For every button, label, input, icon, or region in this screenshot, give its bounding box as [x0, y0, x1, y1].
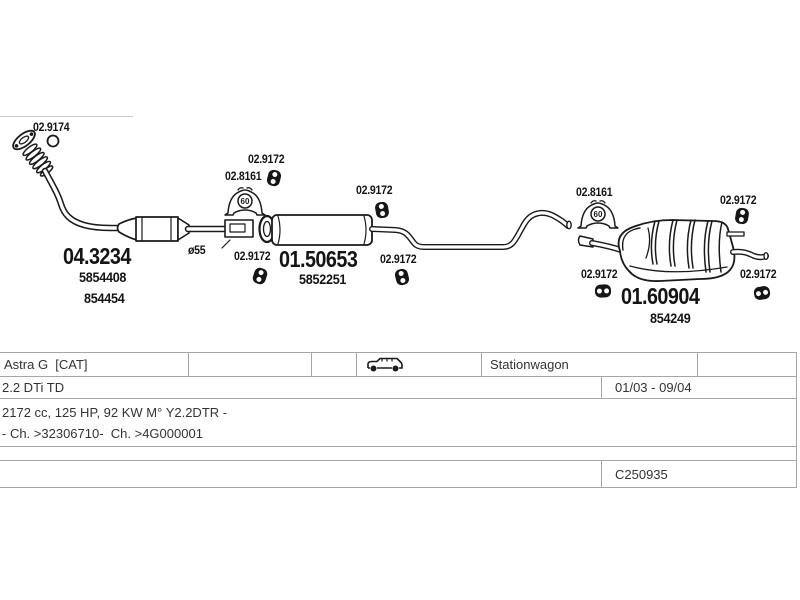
- engine-spec-cell: 2172 cc, 125 HP, 92 KW M° Y2.2DTR - - Ch…: [0, 399, 797, 446]
- middle-silencer-ref1: 5852251: [299, 272, 346, 286]
- bracket-size-label: 60: [241, 197, 250, 206]
- empty-cell: [698, 353, 797, 376]
- engine-spec-line2: - Ch. >32306710- Ch. >4G000001: [2, 423, 796, 444]
- front-pipe: [45, 171, 121, 228]
- hanger-part-label: 02.9172: [581, 268, 617, 280]
- rubber-hanger-icon: [753, 285, 771, 301]
- body-type-cell: Stationwagon: [482, 353, 698, 376]
- front-pipe-ref1: 5854408: [79, 270, 126, 284]
- empty-cell: [312, 353, 357, 376]
- build-period-cell: 01/03 - 09/04: [602, 377, 797, 398]
- intermediate-pipe: [372, 213, 571, 247]
- table-row: Astra G [CAT] Stationwagon: [0, 352, 797, 376]
- pipe-diameter-label: ø55: [188, 244, 205, 256]
- front-pipe-number[interactable]: 04.3234: [63, 245, 131, 268]
- middle-silencer: [260, 215, 373, 245]
- bracket-part-label: 02.8161: [225, 170, 261, 182]
- hanger-part-label: 02.9172: [356, 184, 392, 196]
- gasket-part-label: 02.9174: [33, 121, 69, 133]
- rubber-hanger-icon: [394, 268, 410, 287]
- rubber-hanger-icon: [734, 207, 750, 225]
- middle-silencer-number[interactable]: 01.50653: [279, 248, 357, 271]
- tailpipe: [733, 252, 768, 260]
- table-row: [0, 446, 797, 460]
- body-icon-cell: [357, 353, 482, 376]
- engine-cell: 2.2 DTi TD: [0, 377, 602, 398]
- rear-silencer-body: [619, 220, 744, 281]
- mounting-bracket-icon: 60: [578, 201, 618, 228]
- table-row: 2.2 DTi TD 01/03 - 09/04: [0, 376, 797, 398]
- vehicle-info-table: Astra G [CAT] Stationwagon 2.2 DTi TD 01…: [0, 352, 797, 488]
- flex-pipe-icon: [21, 142, 55, 178]
- model-cell: Astra G [CAT]: [0, 353, 189, 376]
- rubber-hanger-icon: [266, 169, 282, 188]
- joint-sleeve: [222, 220, 253, 248]
- rear-inlet-pipe: [579, 236, 622, 250]
- rubber-hanger-icon: [374, 201, 390, 219]
- front-pipe-ref2: 854454: [84, 291, 124, 305]
- hanger-part-label: 02.9172: [720, 194, 756, 206]
- table-row: 2172 cc, 125 HP, 92 KW M° Y2.2DTR - - Ch…: [0, 398, 797, 446]
- empty-cell: [0, 461, 602, 487]
- engine-spec-line1: 2172 cc, 125 HP, 92 KW M° Y2.2DTR -: [2, 402, 796, 423]
- empty-cell: [0, 447, 797, 460]
- document-code: C250935: [615, 467, 668, 482]
- hanger-part-label: 02.9172: [740, 268, 776, 280]
- table-row: C250935: [0, 460, 797, 488]
- o-ring-icon: [48, 136, 59, 147]
- rear-silencer-number[interactable]: 01.60904: [621, 285, 699, 308]
- rear-silencer-ref1: 854249: [650, 311, 690, 325]
- bracket-size-label: 60: [594, 210, 603, 219]
- model-name: Astra G [CAT]: [4, 357, 88, 372]
- build-period: 01/03 - 09/04: [615, 380, 692, 395]
- body-type: Stationwagon: [490, 357, 569, 372]
- stationwagon-icon: [366, 356, 404, 373]
- engine-name: 2.2 DTi TD: [2, 380, 64, 395]
- hanger-part-label: 02.9172: [234, 250, 270, 262]
- rubber-hanger-icon: [251, 266, 268, 285]
- bracket-part-label: 02.8161: [576, 186, 612, 198]
- document-code-cell: C250935: [602, 461, 797, 487]
- mounting-bracket-icon: 60: [225, 188, 265, 215]
- empty-cell: [189, 353, 312, 376]
- hanger-part-label: 02.9172: [380, 253, 416, 265]
- catalytic-converter: [118, 217, 234, 241]
- hanger-part-label: 02.9172: [248, 153, 284, 165]
- rubber-hanger-icon: [595, 284, 611, 298]
